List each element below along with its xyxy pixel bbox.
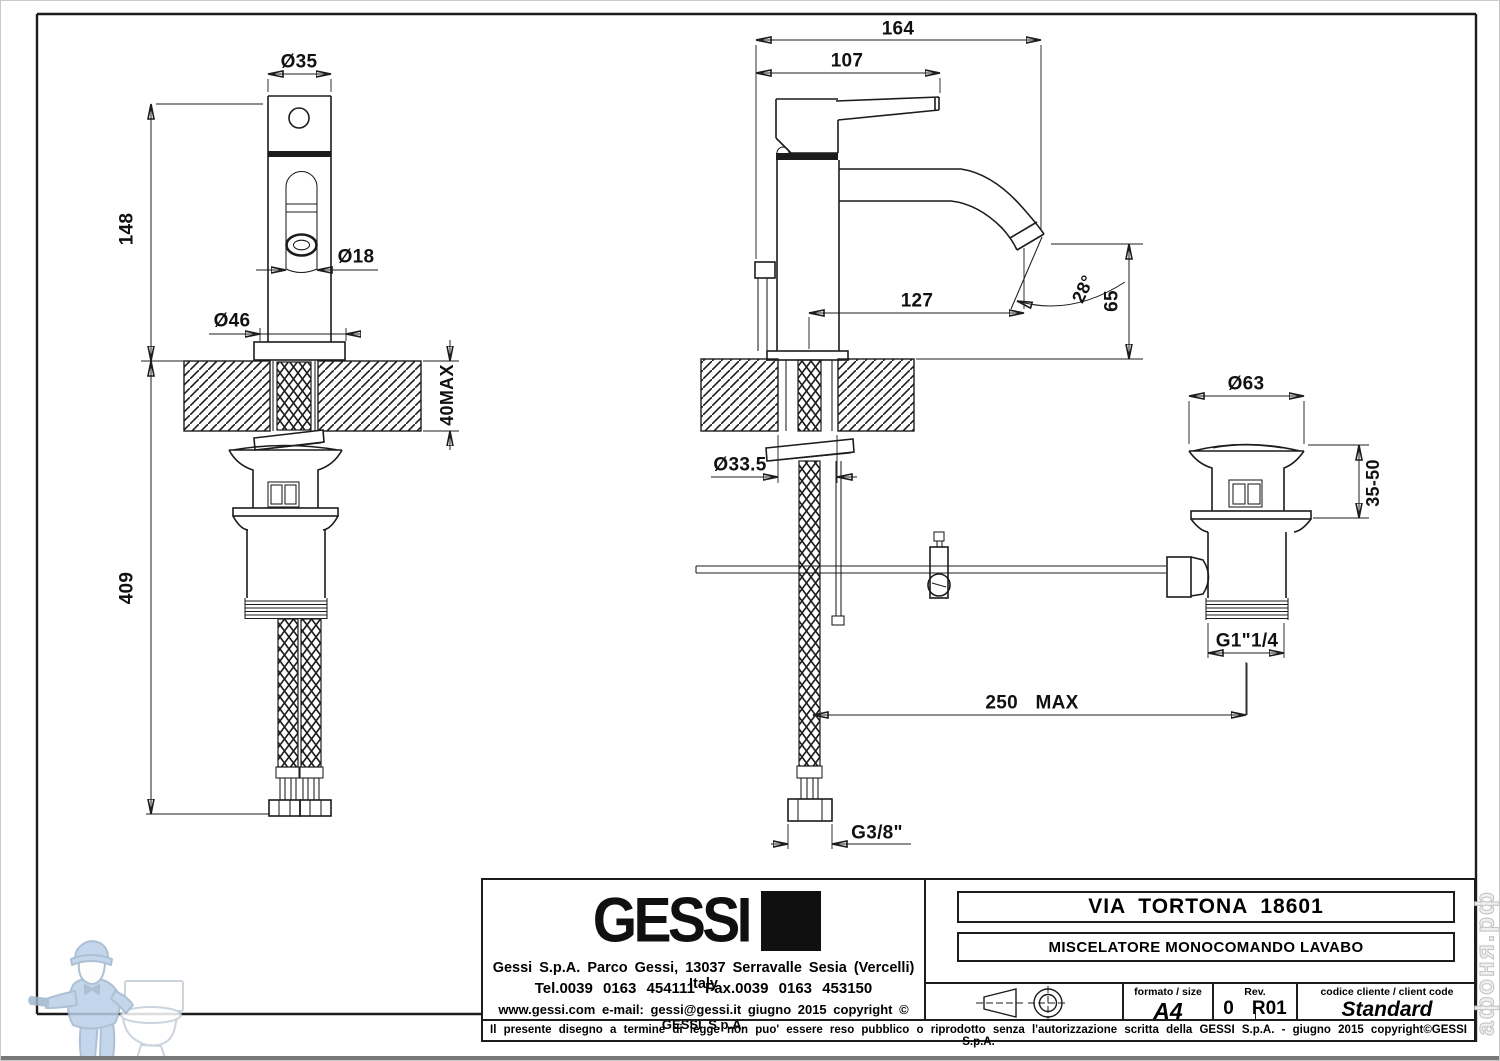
gessi-logo-text: GESSI [593,889,749,952]
revision-value-b: R01 [1252,998,1287,1020]
dim-label-handle-depth: 107 [831,52,864,71]
legal-note: Il presente disegno a termine di legge n… [483,1019,1474,1040]
client-code-cell: codice cliente / client code Standard [1296,984,1476,1021]
dim-label-hole-dia: Ø33.5 [713,456,766,475]
page-bottom-edge [1,1056,1499,1060]
dim-label-waste-thread: G1"1/4 [1216,632,1279,651]
plumber-watermark-icon [25,933,239,1061]
gessi-logo-square [761,891,821,951]
company-phone: Tel.0039 0163 454111 Fax.0039 0163 45315… [483,980,924,997]
dim-label-dia-top: Ø35 [281,53,318,72]
drain-side-view [1167,445,1311,621]
side-view-dimension-lines [711,40,1246,849]
dim-label-height-above-counter: 148 [118,213,137,246]
dim-label-length-below: 409 [118,572,137,605]
dim-label-max-span: 250 MAX [985,694,1078,713]
dim-label-flange-dia: Ø63 [1228,375,1265,394]
product-series-box: VIA TORTONA 18601 [957,891,1455,923]
dim-label-spout-reach: 127 [901,292,934,311]
dim-label-clamp-range: 35-50 [1364,459,1382,507]
dim-label-total-depth: 164 [882,20,915,39]
title-block-info-row: formato / size A4 Rev. 0 R01 codice clie… [926,982,1476,1021]
dim-label-supply-thread: G3/8" [851,824,903,843]
format-label: formato / size [1124,986,1212,998]
revision-label: Rev. [1214,986,1296,998]
dim-label-spout-dia: Ø18 [338,248,375,267]
dim-label-counter-thickness: 40MAX [438,362,456,428]
revision-cell: Rev. 0 R01 [1212,984,1296,1021]
site-watermark: афоня.рф [1470,890,1500,1035]
drain-view-dimension-lines [1189,396,1369,715]
dim-label-spout-height: 65 [1103,290,1122,312]
front-view-faucet [184,96,421,431]
technical-drawing-page: Ø35 148 Ø18 Ø46 40MAX 409 164 107 127 28… [0,0,1500,1061]
front-view-drain-assembly [229,430,342,816]
client-code-label: codice cliente / client code [1298,986,1476,998]
dim-label-base-dia: Ø46 [214,312,251,331]
title-block-product-cell: VIA TORTONA 18601 MISCELATORE MONOCOMAND… [926,880,1476,1021]
first-angle-projection-icon [966,984,1096,1023]
format-cell: formato / size A4 [1122,984,1212,1021]
gessi-logo: GESSI [483,884,924,958]
product-description-box: MISCELATORE MONOCOMANDO LAVABO [957,932,1455,962]
title-block-company-cell: GESSI Gessi S.p.A. Parco Gessi, 13037 Se… [483,880,926,1021]
revision-value-a: 0 [1223,998,1234,1020]
title-block: GESSI Gessi S.p.A. Parco Gessi, 13037 Se… [481,878,1476,1042]
